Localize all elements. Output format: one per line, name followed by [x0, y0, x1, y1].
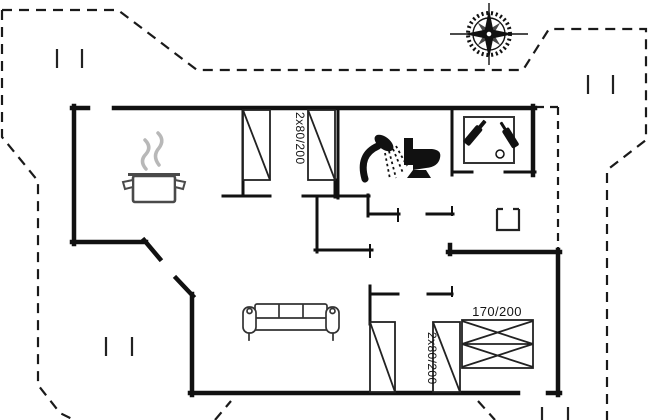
bed-size-label-top: 2x80/200 [293, 112, 307, 165]
bed-double [462, 320, 533, 368]
wall-hall-top [368, 195, 453, 216]
ticks-bottom-left [106, 337, 132, 356]
double-bed-size-label: 170/200 [472, 304, 522, 319]
bedroom-bottom [370, 320, 533, 392]
boundary-bottom-left-link [215, 401, 231, 420]
wall-hall-closet [315, 197, 372, 252]
stove-icon [497, 209, 519, 230]
toilet-icon [404, 138, 440, 178]
floor-plan: 2x80/200 2x80/200 170/200 [0, 0, 650, 420]
sofa-icon [243, 304, 339, 340]
jamb-ticks [370, 206, 452, 297]
steam [143, 133, 162, 169]
ticks-top-left [57, 49, 82, 68]
wall-sw-bay [72, 240, 193, 395]
bed-single [308, 110, 335, 180]
boundary-left [2, 10, 74, 420]
compass-icon [450, 3, 528, 65]
boundary-inner-corner [536, 107, 558, 250]
boundary-top-left [2, 10, 646, 420]
bottles-icon [463, 117, 520, 163]
ticks-top-right [588, 75, 613, 94]
bed-single [370, 322, 395, 392]
bed-size-label-bottom: 2x80/200 [425, 332, 439, 385]
shower-icon [363, 131, 407, 179]
cooking-pot-icon [123, 133, 185, 202]
wall-bedroom2-top [448, 245, 560, 254]
ticks-bottom-right [542, 407, 568, 420]
bed-single [243, 110, 270, 180]
boundary-bottom-right-link [478, 401, 495, 420]
bedroom-top [243, 110, 335, 180]
plot-boundary [2, 10, 646, 420]
door-jambs [370, 206, 452, 297]
